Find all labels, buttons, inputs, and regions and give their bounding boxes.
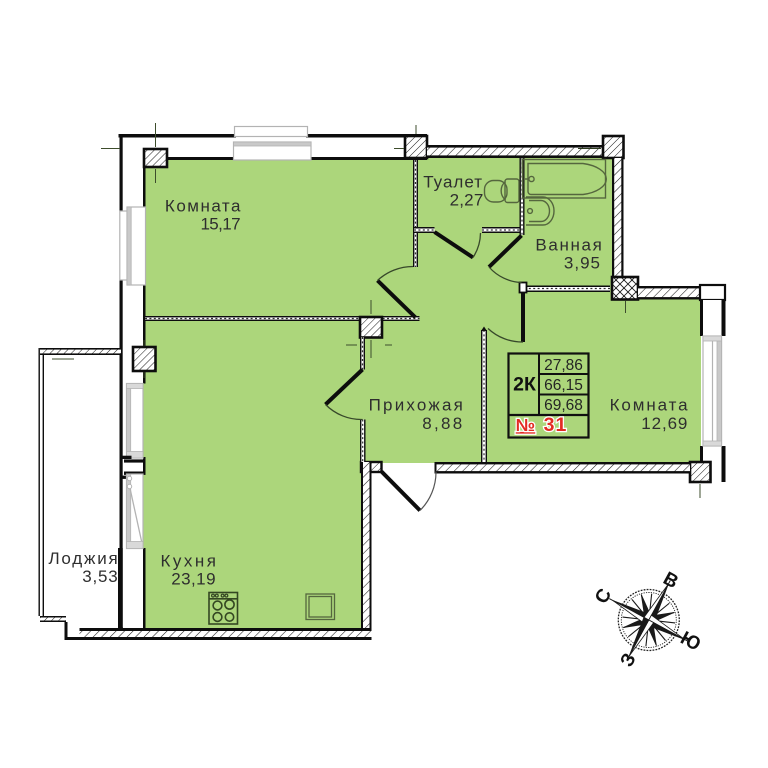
- svg-text:8,88: 8,88: [422, 414, 464, 433]
- svg-text:Прихожая: Прихожая: [369, 396, 465, 415]
- svg-text:Кухня: Кухня: [161, 552, 219, 571]
- svg-text:27,86: 27,86: [544, 357, 583, 374]
- svg-text:12,69: 12,69: [641, 414, 688, 433]
- svg-text:3,53: 3,53: [82, 567, 118, 586]
- svg-text:69,68: 69,68: [544, 397, 583, 414]
- svg-text:Ванная: Ванная: [535, 236, 603, 255]
- svg-text:2,27: 2,27: [450, 191, 484, 210]
- svg-text:№: №: [516, 415, 536, 435]
- svg-text:Комната: Комната: [610, 396, 690, 415]
- svg-text:3,95: 3,95: [564, 254, 601, 273]
- svg-text:66,15: 66,15: [544, 377, 583, 394]
- svg-text:Туалет: Туалет: [423, 173, 483, 192]
- svg-text:15,17: 15,17: [200, 215, 240, 234]
- svg-text:31: 31: [544, 414, 568, 436]
- svg-text:23,19: 23,19: [171, 570, 216, 589]
- svg-text:2К: 2К: [513, 374, 536, 396]
- svg-text:Комната: Комната: [165, 197, 242, 216]
- svg-text:Лоджия: Лоджия: [48, 549, 119, 568]
